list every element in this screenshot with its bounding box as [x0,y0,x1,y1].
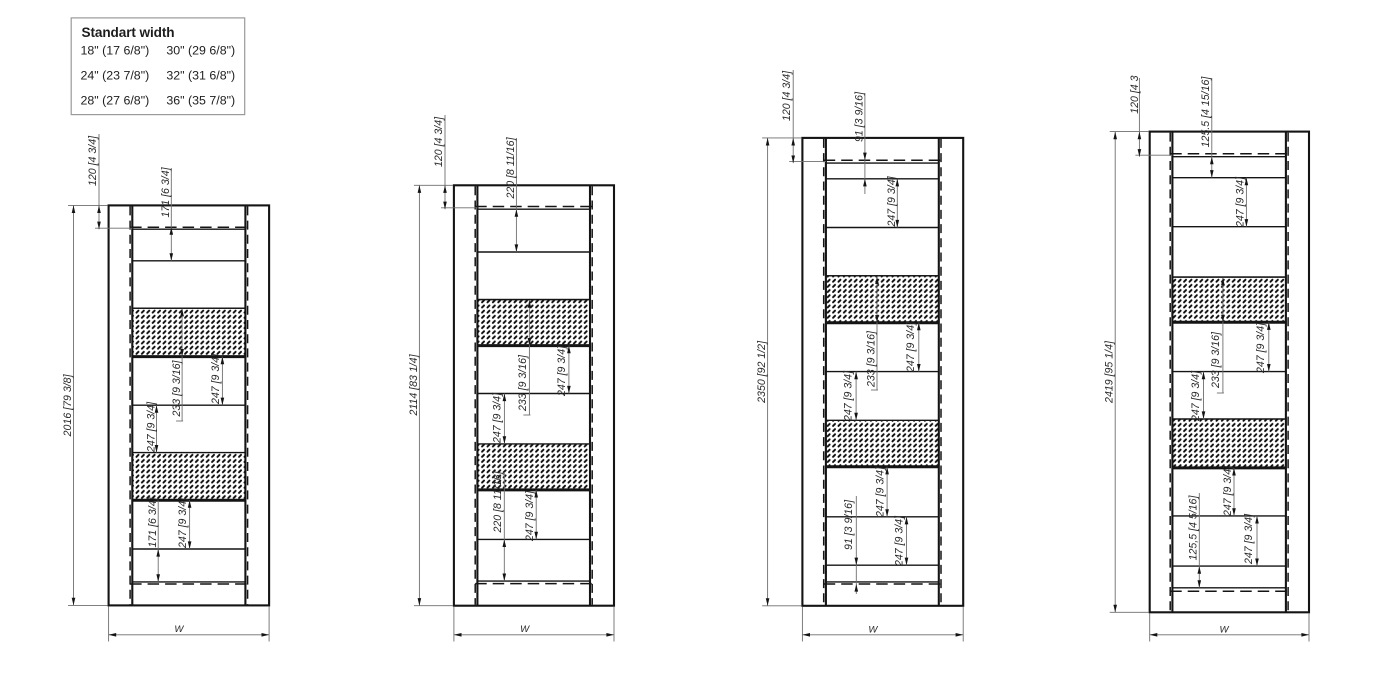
svg-text:36" (35 7/8"): 36" (35 7/8") [166,94,235,108]
svg-text:233 [9 3/16]: 233 [9 3/16] [865,330,877,388]
svg-text:28" (27 6/8"): 28" (27 6/8") [81,94,150,108]
svg-text:220 [8 11/16]: 220 [8 11/16] [492,470,504,533]
svg-text:247 [9 3/4]: 247 [9 3/4] [492,392,504,444]
svg-text:2016 [79 3/8]: 2016 [79 3/8] [62,373,74,437]
svg-text:125.5 [4 15/16]: 125.5 [4 15/16] [1200,76,1212,148]
svg-text:171 [6 3/4]: 171 [6 3/4] [147,496,159,547]
svg-text:247 [9 3/4]: 247 [9 3/4] [1243,513,1255,565]
svg-text:247 [9 3/4]: 247 [9 3/4] [894,515,906,567]
svg-text:18" (17 6/8"): 18" (17 6/8") [81,44,150,58]
svg-text:125,5 [4 5/16]: 125,5 [4 5/16] [1187,495,1199,561]
svg-text:91 [3 9/16]: 91 [3 9/16] [843,499,855,550]
svg-text:233 [9 3/16]: 233 [9 3/16] [171,359,183,417]
svg-text:171 [6 3/4]: 171 [6 3/4] [160,166,172,217]
svg-text:247 [9 3/4]: 247 [9 3/4] [905,321,917,373]
svg-text:W: W [1219,625,1229,636]
svg-text:247 [9 3/4]: 247 [9 3/4] [556,345,568,397]
svg-text:247 [9 3/4]: 247 [9 3/4] [886,175,898,227]
svg-text:91 [3 9/16]: 91 [3 9/16] [853,91,865,142]
svg-text:247 [9 3/4]: 247 [9 3/4] [1234,176,1246,228]
svg-text:120 [4 3/4]: 120 [4 3/4] [781,70,793,121]
svg-text:W: W [174,624,184,635]
svg-text:120 [4 3/4]: 120 [4 3/4] [433,116,445,167]
svg-text:247 [9 3/4]: 247 [9 3/4] [843,370,855,422]
svg-text:247 [9 3/4]: 247 [9 3/4] [1222,465,1234,517]
svg-text:233 [9 3/16]: 233 [9 3/16] [1210,331,1222,389]
svg-text:W: W [868,625,878,636]
svg-text:24" (23 7/8"): 24" (23 7/8") [81,69,150,83]
svg-text:247 [9 3/4]: 247 [9 3/4] [1190,370,1202,422]
svg-text:247 [9 3/4]: 247 [9 3/4] [177,497,189,549]
svg-text:247 [9 3/4]: 247 [9 3/4] [524,490,536,542]
svg-text:247 [9 3/4]: 247 [9 3/4] [874,466,886,518]
svg-text:247 [9 3/4]: 247 [9 3/4] [145,401,157,453]
svg-text:247 [9 3/4]: 247 [9 3/4] [210,353,222,405]
svg-text:2114 [83 1/4]: 2114 [83 1/4] [408,353,420,416]
svg-text:120 [4 3: 120 [4 3 [1129,75,1141,113]
svg-text:247 [9 3/4]: 247 [9 3/4] [1255,322,1267,374]
svg-text:120 [4 3/4]: 120 [4 3/4] [87,135,99,186]
svg-text:220 [8 11/16]: 220 [8 11/16] [505,136,517,199]
svg-text:Standart width: Standart width [82,25,175,40]
svg-text:30" (29 6/8"): 30" (29 6/8") [166,44,235,58]
svg-text:2419 [95 1/4]: 2419 [95 1/4] [1104,340,1116,404]
svg-text:32" (31 6/8"): 32" (31 6/8") [166,69,235,83]
svg-text:2350 [92 1/2]: 2350 [92 1/2] [756,340,768,404]
svg-text:W: W [520,624,530,635]
svg-text:233 [9 3/16]: 233 [9 3/16] [517,354,529,412]
